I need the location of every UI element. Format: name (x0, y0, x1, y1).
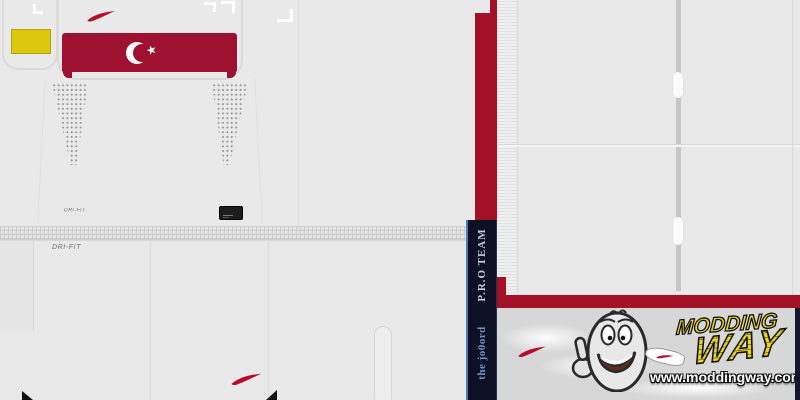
ribbed-edge-texture (497, 0, 517, 296)
waistband-notch (673, 72, 683, 98)
registration-mark-icon (221, 1, 235, 13)
panel-seam-line (0, 240, 467, 241)
moddingway-mascot-icon (570, 308, 652, 392)
perforation-dots-left (52, 83, 88, 165)
tag-stitch (223, 215, 233, 216)
panel-seam-line (150, 241, 151, 400)
tag-stitch (223, 217, 229, 218)
red-hem-band (497, 295, 800, 308)
registration-mark-icon (277, 9, 293, 22)
nike-swoosh-icon (655, 351, 674, 363)
pro-team-label: P.R.O TEAM (475, 223, 489, 307)
cut-mark-icon (22, 391, 33, 400)
placket-strip-outline (374, 326, 392, 400)
ribbed-waistband-texture (0, 226, 467, 240)
care-tag (219, 206, 243, 220)
panel-seam-line (298, 0, 299, 226)
waistband-notch (673, 217, 683, 245)
red-side-panel (475, 13, 490, 220)
dri-fit-label: DRI-FIT (64, 208, 86, 213)
registration-mark-icon (204, 2, 216, 12)
panel-seam-line (792, 0, 793, 295)
turkey-flag-band: ★ (62, 33, 237, 72)
star-icon: ★ (144, 43, 158, 58)
side-seam-line (37, 78, 46, 223)
panel-seam-line (268, 241, 269, 400)
side-seam-line (254, 78, 263, 223)
nike-swoosh-icon (517, 345, 547, 359)
moddingway-url: www.moddingway.com (650, 369, 800, 385)
perforation-dots-right (212, 83, 248, 165)
seam-highlight (497, 145, 800, 147)
band-corner-tab (227, 70, 236, 78)
kit-texture-sheet: ★ DRI-FIT DRI-FIT P.R.O TEAM the jo0ord (0, 0, 800, 400)
registration-mark-icon (33, 4, 43, 14)
panel-seam-line (33, 241, 34, 331)
panel-seam-line (517, 0, 518, 296)
dri-fit-label: DRI-FIT (52, 244, 81, 251)
yellow-fabric-patch (11, 29, 51, 54)
nike-swoosh-icon (86, 10, 116, 23)
red-side-panel-thin (490, 0, 497, 221)
nike-swoosh-icon (230, 372, 263, 387)
shaded-panel (0, 241, 33, 331)
author-label: the jo0ord (475, 311, 489, 395)
dark-edge-strip (795, 308, 800, 400)
band-corner-tab (63, 70, 72, 78)
red-trim-stub (497, 277, 506, 295)
